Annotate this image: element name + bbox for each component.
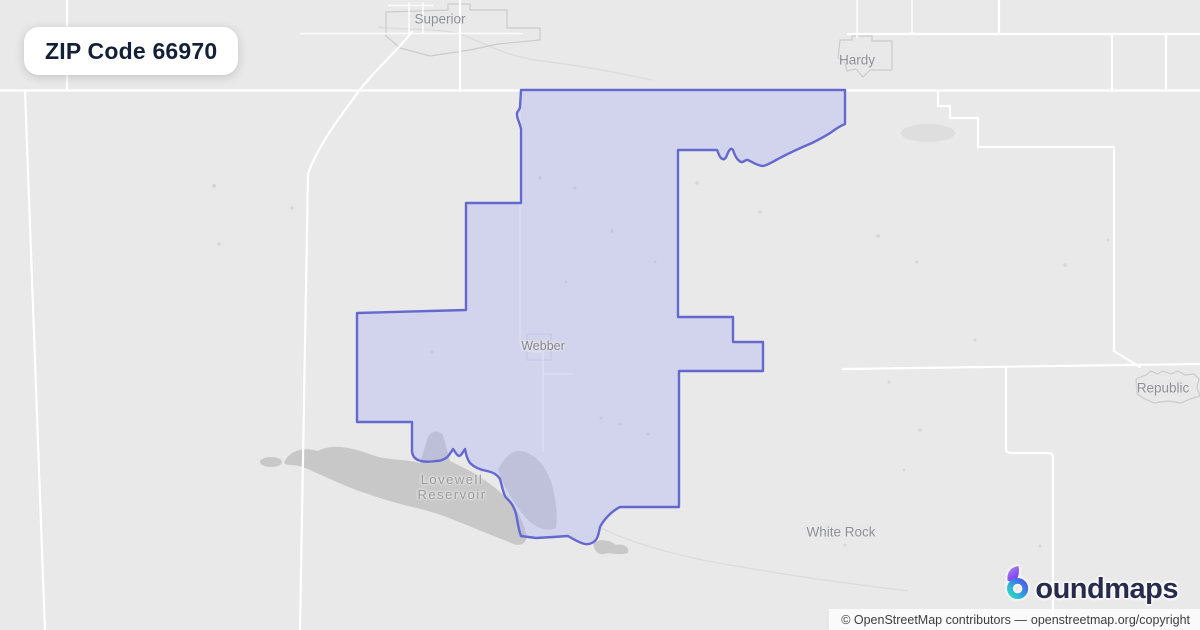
label-hardy: Hardy	[839, 53, 875, 68]
vegetation-patch	[901, 124, 955, 142]
boundmaps-wordmark: oundmaps	[1035, 574, 1178, 604]
map-canvas[interactable]: Superior Hardy Webber Lovewell Reservoir…	[0, 0, 1200, 630]
label-superior: Superior	[414, 12, 465, 27]
attribution-bar: © OpenStreetMap contributors — openstree…	[829, 609, 1200, 630]
boundmaps-b-icon	[1004, 565, 1034, 604]
attribution-text: © OpenStreetMap contributors —	[841, 613, 1027, 627]
attribution-copyright-link[interactable]: openstreetmap.org/copyright	[1031, 613, 1190, 627]
label-lovewell-line1: Lovewell	[421, 472, 484, 487]
label-white-rock: White Rock	[806, 525, 875, 540]
label-republic: Republic	[1137, 381, 1190, 396]
label-lovewell-reservoir: Lovewell Reservoir	[417, 472, 486, 502]
label-webber: Webber	[521, 339, 565, 353]
boundmaps-logo: oundmaps	[1004, 565, 1178, 604]
base-map	[0, 0, 1200, 630]
label-lovewell-line2: Reservoir	[417, 487, 486, 502]
zip-code-badge: ZIP Code 66970	[24, 27, 238, 75]
zip-code-badge-label: ZIP Code 66970	[45, 38, 217, 65]
